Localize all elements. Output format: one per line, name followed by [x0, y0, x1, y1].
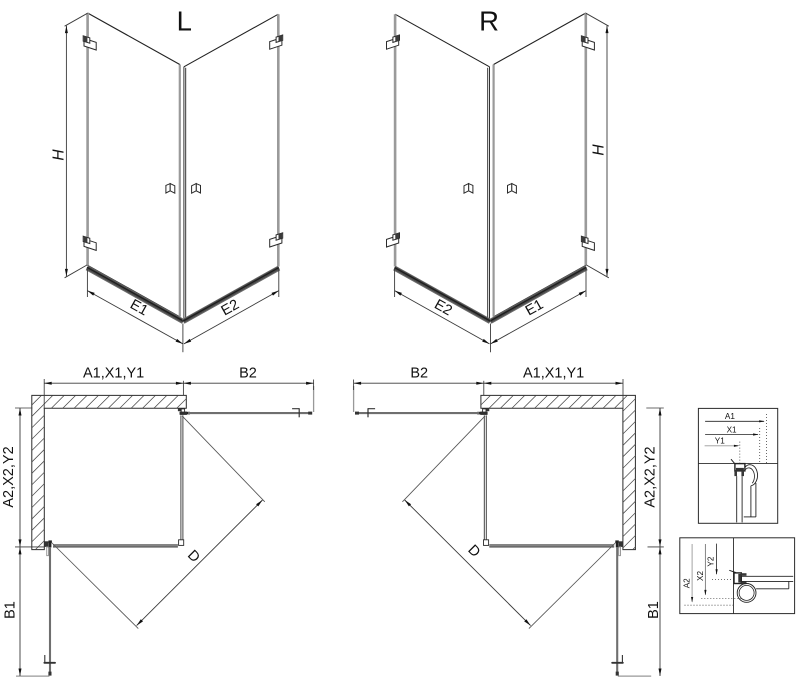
svg-text:H: H — [51, 149, 68, 161]
svg-text:B1: B1 — [3, 601, 19, 619]
svg-text:Y2: Y2 — [707, 556, 716, 566]
svg-text:B2: B2 — [239, 365, 257, 381]
svg-text:A1,X1,Y1: A1,X1,Y1 — [523, 365, 584, 381]
svg-text:X2: X2 — [696, 571, 705, 581]
svg-text:H: H — [591, 144, 608, 156]
svg-text:B1: B1 — [646, 601, 662, 619]
svg-text:A1: A1 — [725, 412, 735, 421]
svg-text:R: R — [479, 6, 499, 37]
svg-text:A2,X2,Y2: A2,X2,Y2 — [1, 446, 17, 507]
svg-text:A1,X1,Y1: A1,X1,Y1 — [83, 365, 144, 381]
svg-text:A2,X2,Y2: A2,X2,Y2 — [642, 446, 658, 507]
svg-text:L: L — [177, 6, 192, 37]
svg-text:A2: A2 — [682, 578, 691, 588]
svg-text:Y1: Y1 — [715, 436, 725, 445]
svg-text:X1: X1 — [727, 426, 737, 435]
svg-text:B2: B2 — [410, 365, 428, 381]
